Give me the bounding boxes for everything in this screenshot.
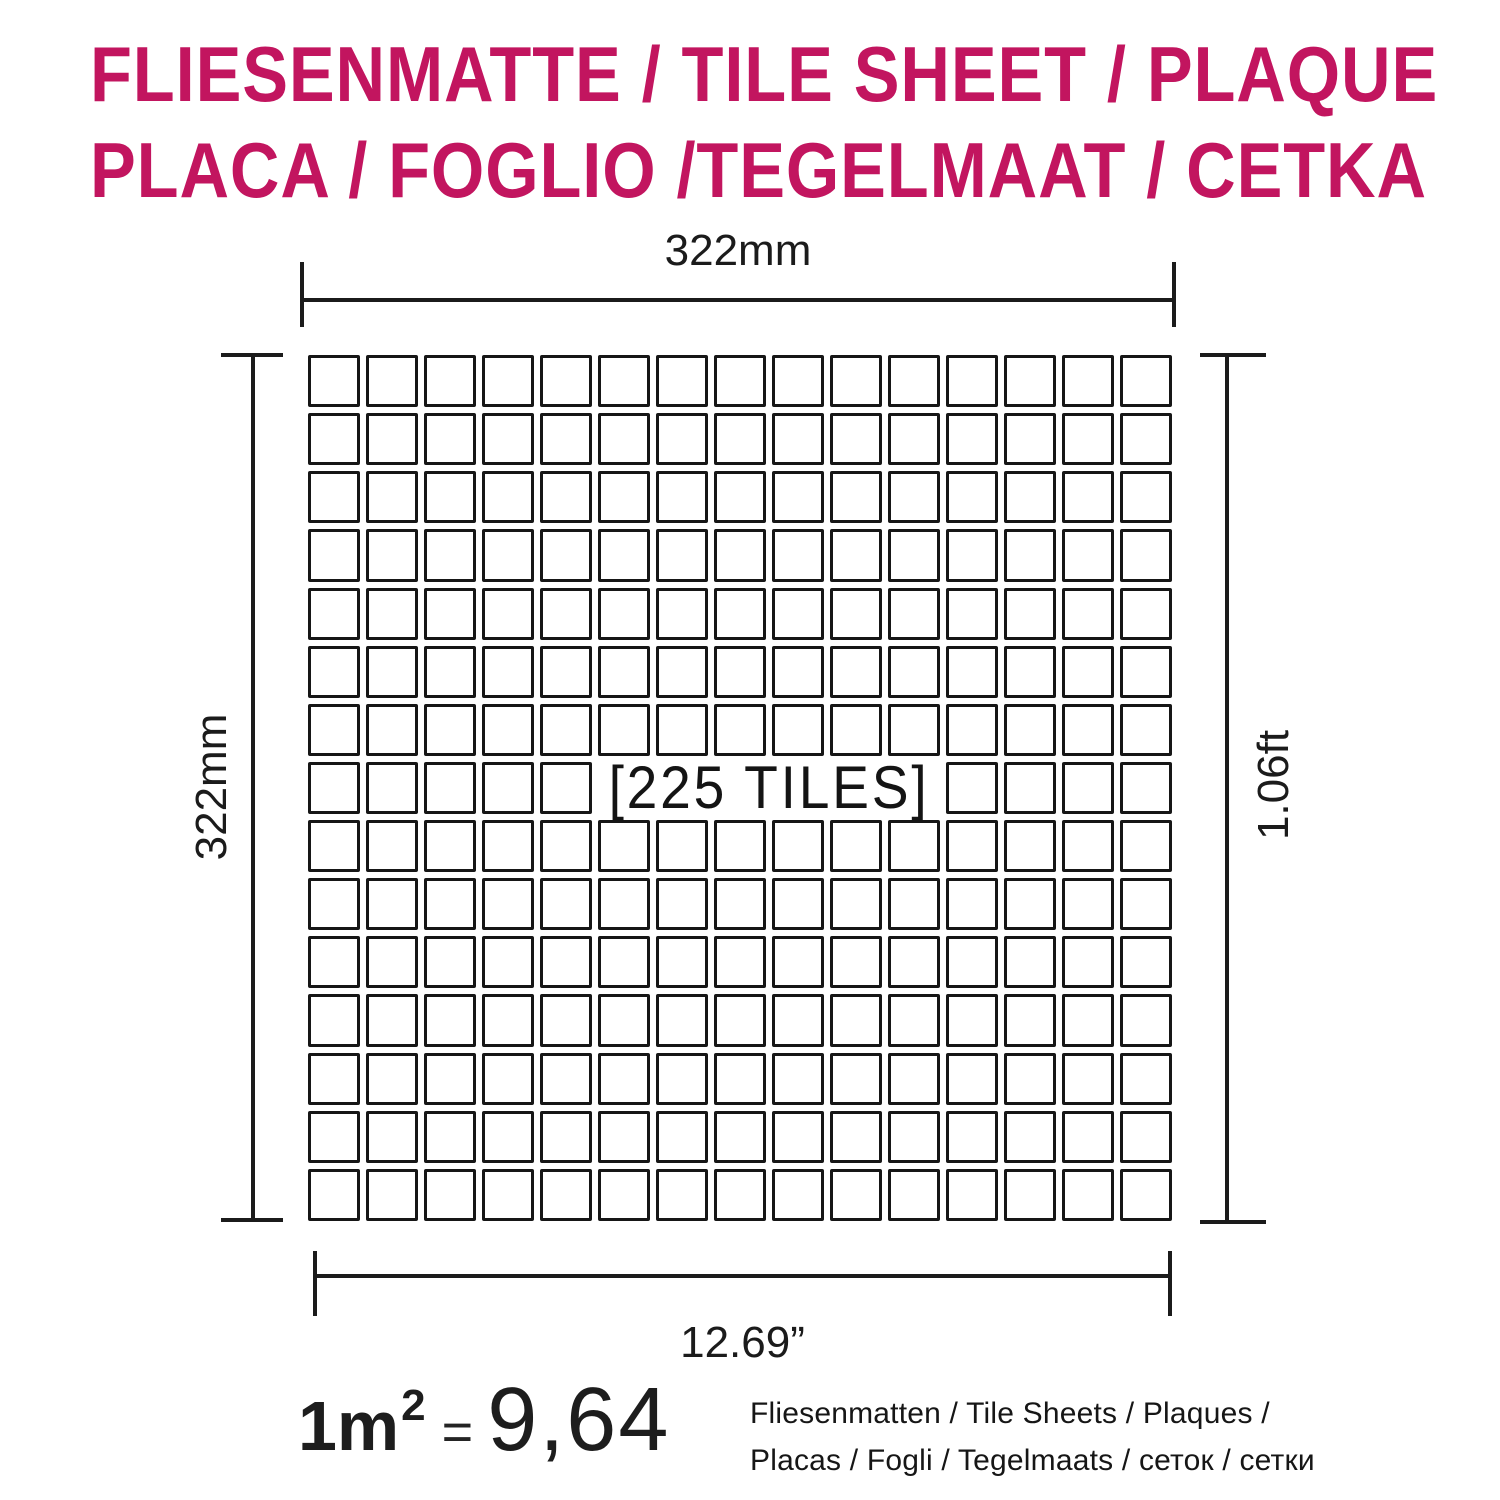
tile — [366, 994, 418, 1046]
coverage-base: 1m — [298, 1387, 399, 1465]
tile — [946, 355, 998, 407]
tile — [598, 646, 650, 698]
tile — [424, 936, 476, 988]
tile — [656, 413, 708, 465]
tile — [424, 471, 476, 523]
tile — [772, 704, 824, 756]
tile — [308, 820, 360, 872]
tile — [540, 820, 592, 872]
tile — [598, 529, 650, 581]
tile — [714, 994, 766, 1046]
sheet-captions: Fliesenmatten / Tile Sheets / Plaques / … — [750, 1399, 1315, 1476]
tile — [946, 471, 998, 523]
tile — [888, 704, 940, 756]
tile — [946, 1169, 998, 1221]
tile — [540, 878, 592, 930]
dimension-label-right: 1.06ft — [1249, 730, 1299, 840]
tile — [308, 878, 360, 930]
coverage-equals: = — [442, 1402, 474, 1462]
tile — [1062, 820, 1114, 872]
tile — [830, 1053, 882, 1105]
tile — [540, 936, 592, 988]
tile — [540, 355, 592, 407]
tile — [424, 529, 476, 581]
dimension-line-top — [302, 298, 1174, 302]
tile — [424, 646, 476, 698]
tile — [656, 471, 708, 523]
tile — [888, 413, 940, 465]
tile — [830, 820, 882, 872]
tile — [540, 994, 592, 1046]
tile — [540, 1111, 592, 1163]
tile — [946, 820, 998, 872]
tile — [308, 646, 360, 698]
tile — [598, 878, 650, 930]
page-root: FLIESENMATTE / TILE SHEET / PLAQUE PLACA… — [0, 0, 1500, 1500]
tile — [1120, 1053, 1172, 1105]
dimension-label-top: 322mm — [302, 226, 1174, 276]
tile — [482, 878, 534, 930]
tile — [424, 994, 476, 1046]
tile — [1062, 1111, 1114, 1163]
tile — [714, 878, 766, 930]
tile — [1004, 1169, 1056, 1221]
tile — [946, 762, 998, 814]
coverage-value: 9,64 — [487, 1370, 670, 1470]
tile — [366, 820, 418, 872]
tile — [598, 1053, 650, 1105]
dimension-tick-right-bottom — [1200, 1220, 1266, 1224]
tile — [656, 820, 708, 872]
tile — [656, 355, 708, 407]
tile — [772, 413, 824, 465]
tile — [830, 529, 882, 581]
tile — [1120, 1111, 1172, 1163]
tile — [1004, 820, 1056, 872]
tile — [424, 704, 476, 756]
tile — [830, 1111, 882, 1163]
tile — [714, 820, 766, 872]
tile — [946, 588, 998, 640]
tile — [540, 471, 592, 523]
tile — [366, 355, 418, 407]
coverage-formula: 1m2=9,64 — [298, 1375, 670, 1465]
tile — [946, 994, 998, 1046]
tile — [888, 820, 940, 872]
tile — [888, 529, 940, 581]
tile — [308, 413, 360, 465]
tile — [366, 646, 418, 698]
dimension-tick-top-right — [1172, 262, 1176, 327]
tile — [308, 529, 360, 581]
tile — [656, 1053, 708, 1105]
tile — [1004, 588, 1056, 640]
tile — [888, 588, 940, 640]
tile — [830, 1169, 882, 1221]
tile — [366, 878, 418, 930]
tile — [1062, 1169, 1114, 1221]
tile — [830, 704, 882, 756]
tile — [830, 994, 882, 1046]
tile — [424, 762, 476, 814]
tile — [656, 878, 708, 930]
tile — [888, 471, 940, 523]
tile — [424, 820, 476, 872]
coverage-superscript: 2 — [401, 1381, 425, 1430]
tile — [656, 646, 708, 698]
tile — [772, 820, 824, 872]
tile — [482, 704, 534, 756]
tile — [1062, 878, 1114, 930]
tile — [482, 994, 534, 1046]
tile — [772, 529, 824, 581]
product-title-line-1: FLIESENMATTE / TILE SHEET / PLAQUE — [90, 26, 1410, 122]
dimension-tick-right-top — [1200, 353, 1266, 357]
tile — [830, 413, 882, 465]
tile — [1062, 994, 1114, 1046]
tile — [366, 588, 418, 640]
tile — [308, 1169, 360, 1221]
tile — [888, 355, 940, 407]
tile — [888, 936, 940, 988]
tile — [888, 646, 940, 698]
tile — [308, 1111, 360, 1163]
tile — [1004, 646, 1056, 698]
tile — [830, 646, 882, 698]
tile — [424, 878, 476, 930]
tile — [366, 762, 418, 814]
tile — [598, 471, 650, 523]
tile — [714, 588, 766, 640]
tile — [1004, 471, 1056, 523]
tile — [772, 994, 824, 1046]
tile — [482, 1169, 534, 1221]
tile — [888, 1169, 940, 1221]
tile — [656, 588, 708, 640]
dimension-tick-bottom-right — [1168, 1251, 1172, 1316]
tile — [1120, 820, 1172, 872]
tile — [830, 355, 882, 407]
tile — [598, 355, 650, 407]
tile — [366, 1111, 418, 1163]
tile — [1120, 994, 1172, 1046]
tile — [482, 355, 534, 407]
tile — [366, 704, 418, 756]
tile — [946, 704, 998, 756]
tile — [946, 1111, 998, 1163]
tile — [366, 936, 418, 988]
tile — [308, 1053, 360, 1105]
tile — [714, 1053, 766, 1105]
dimension-label-left: 322mm — [187, 714, 237, 861]
tile — [598, 936, 650, 988]
tile — [482, 529, 534, 581]
tile — [772, 936, 824, 988]
tile — [1120, 588, 1172, 640]
tile — [1004, 994, 1056, 1046]
tile — [946, 936, 998, 988]
tile — [1004, 762, 1056, 814]
tile — [366, 1053, 418, 1105]
tile — [1062, 471, 1114, 523]
tile — [540, 529, 592, 581]
tile — [1004, 1053, 1056, 1105]
tile — [714, 355, 766, 407]
tile — [540, 588, 592, 640]
tile — [598, 704, 650, 756]
tile — [946, 646, 998, 698]
tile — [482, 936, 534, 988]
tile — [830, 878, 882, 930]
tile — [946, 413, 998, 465]
tile — [308, 704, 360, 756]
tile — [714, 936, 766, 988]
tile — [598, 1111, 650, 1163]
tile — [772, 471, 824, 523]
tile — [946, 878, 998, 930]
tile — [714, 1169, 766, 1221]
tile — [656, 704, 708, 756]
tile — [830, 471, 882, 523]
tile — [830, 588, 882, 640]
tile — [540, 646, 592, 698]
tile — [714, 413, 766, 465]
tile — [1062, 762, 1114, 814]
tile — [656, 529, 708, 581]
tile — [888, 878, 940, 930]
product-title-line-2: PLACA / FOGLIO /TEGELMAAT / CETKA — [90, 122, 1410, 218]
tile — [1120, 529, 1172, 581]
tile — [1004, 355, 1056, 407]
tile — [1062, 704, 1114, 756]
tile — [598, 994, 650, 1046]
tile — [482, 588, 534, 640]
tile — [1004, 1111, 1056, 1163]
tile — [772, 588, 824, 640]
dimension-tick-left-bottom — [221, 1218, 283, 1222]
tile — [1004, 878, 1056, 930]
dimension-line-left — [251, 355, 255, 1221]
tile — [772, 1169, 824, 1221]
tile — [482, 820, 534, 872]
tile — [424, 355, 476, 407]
tile — [1004, 704, 1056, 756]
tile — [482, 1053, 534, 1105]
tile — [424, 1053, 476, 1105]
tile — [598, 1169, 650, 1221]
tile — [308, 588, 360, 640]
tile — [656, 1169, 708, 1221]
dimension-tick-left-top — [221, 353, 283, 357]
tile — [1062, 646, 1114, 698]
tile — [482, 646, 534, 698]
tile — [1120, 704, 1172, 756]
tile — [714, 471, 766, 523]
tile — [598, 820, 650, 872]
tile — [366, 1169, 418, 1221]
dimension-tick-bottom-left — [313, 1251, 317, 1316]
tile — [1120, 413, 1172, 465]
tile — [772, 355, 824, 407]
tile — [656, 936, 708, 988]
tile — [1062, 936, 1114, 988]
tile — [946, 529, 998, 581]
tile — [1004, 529, 1056, 581]
tile — [598, 588, 650, 640]
tile — [946, 1053, 998, 1105]
caption-line-2: Placas / Fogli / Tegelmaats / сеток / се… — [750, 1446, 1315, 1476]
tile — [656, 994, 708, 1046]
tile — [888, 994, 940, 1046]
tile — [1120, 471, 1172, 523]
tile — [424, 1169, 476, 1221]
tile — [1062, 413, 1114, 465]
dimension-label-bottom: 12.69” — [315, 1318, 1170, 1368]
tile — [1062, 529, 1114, 581]
tile — [424, 413, 476, 465]
tile — [598, 413, 650, 465]
tile — [308, 994, 360, 1046]
tile — [1120, 936, 1172, 988]
tile — [1120, 646, 1172, 698]
caption-line-1: Fliesenmatten / Tile Sheets / Plaques / — [750, 1399, 1315, 1429]
tile — [1062, 355, 1114, 407]
tile — [366, 413, 418, 465]
tile — [366, 471, 418, 523]
tile — [772, 646, 824, 698]
tile — [540, 413, 592, 465]
tile — [1120, 878, 1172, 930]
product-title: FLIESENMATTE / TILE SHEET / PLAQUE PLACA… — [0, 26, 1500, 218]
tile — [1062, 588, 1114, 640]
tile — [1120, 355, 1172, 407]
tile — [424, 588, 476, 640]
tile — [1004, 413, 1056, 465]
dimension-tick-top-left — [300, 262, 304, 327]
tile — [888, 1111, 940, 1163]
tile — [308, 471, 360, 523]
tile — [366, 529, 418, 581]
tile — [540, 704, 592, 756]
tile — [1120, 1169, 1172, 1221]
tile — [714, 1111, 766, 1163]
tile — [714, 646, 766, 698]
dimension-line-right — [1225, 355, 1229, 1223]
tile — [540, 1053, 592, 1105]
tile — [714, 529, 766, 581]
tile — [656, 1111, 708, 1163]
tile — [1004, 936, 1056, 988]
tile — [540, 762, 592, 814]
tile — [482, 471, 534, 523]
tile — [308, 936, 360, 988]
tile — [540, 1169, 592, 1221]
tile — [888, 1053, 940, 1105]
tile — [424, 1111, 476, 1163]
dimension-line-bottom — [315, 1274, 1170, 1278]
tile — [772, 1111, 824, 1163]
tile — [772, 878, 824, 930]
tile — [1062, 1053, 1114, 1105]
tile — [714, 704, 766, 756]
tile — [308, 762, 360, 814]
tile — [830, 936, 882, 988]
tiles-count-label: [225 TILES] — [610, 758, 928, 816]
tile — [482, 1111, 534, 1163]
tile — [482, 762, 534, 814]
tile — [772, 1053, 824, 1105]
tile — [482, 413, 534, 465]
tile — [1120, 762, 1172, 814]
tile — [308, 355, 360, 407]
